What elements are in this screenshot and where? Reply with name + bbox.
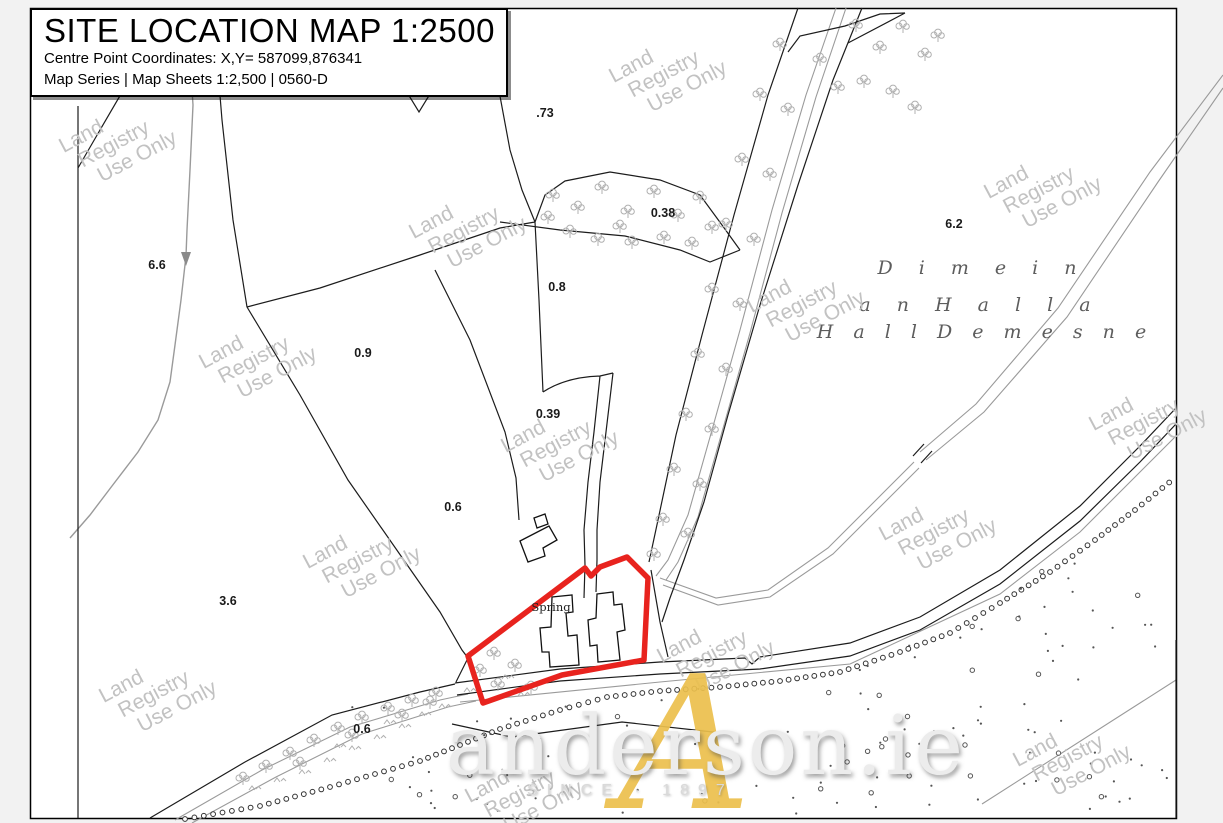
parcel-label: 0.9	[354, 346, 371, 360]
map-frame	[31, 9, 1177, 819]
parcel-label: 0.39	[536, 407, 560, 421]
spring-label: Spring	[531, 600, 570, 614]
parcel-label: 6.2	[945, 217, 962, 231]
townland-name-irish-2: a n H a l l a	[859, 294, 1100, 316]
parcel-label: 0.6	[353, 722, 370, 736]
parcel-label: 6.6	[148, 258, 165, 272]
townland-name-irish-1: D i m e i n	[877, 257, 1086, 279]
parcel-label: .73	[536, 106, 553, 120]
parcel-label: 0.38	[651, 206, 675, 220]
parcel-label: 0.6	[444, 500, 461, 514]
map-title: SITE LOCATION MAP 1:2500	[44, 14, 496, 49]
map-canvas	[0, 0, 1223, 823]
title-block: SITE LOCATION MAP 1:2500 Centre Point Co…	[30, 8, 508, 97]
map-series-info: Map Series | Map Sheets 1:2,500 | 0560-D	[44, 71, 496, 88]
parcel-label: 3.6	[219, 594, 236, 608]
site-location-map-page: SITE LOCATION MAP 1:2500 Centre Point Co…	[0, 0, 1223, 823]
centre-point-coordinates: Centre Point Coordinates: X,Y= 587099,87…	[44, 50, 496, 67]
parcel-label: 0.8	[548, 280, 565, 294]
townland-name-english: H a l l D e m e s n e	[817, 321, 1153, 343]
